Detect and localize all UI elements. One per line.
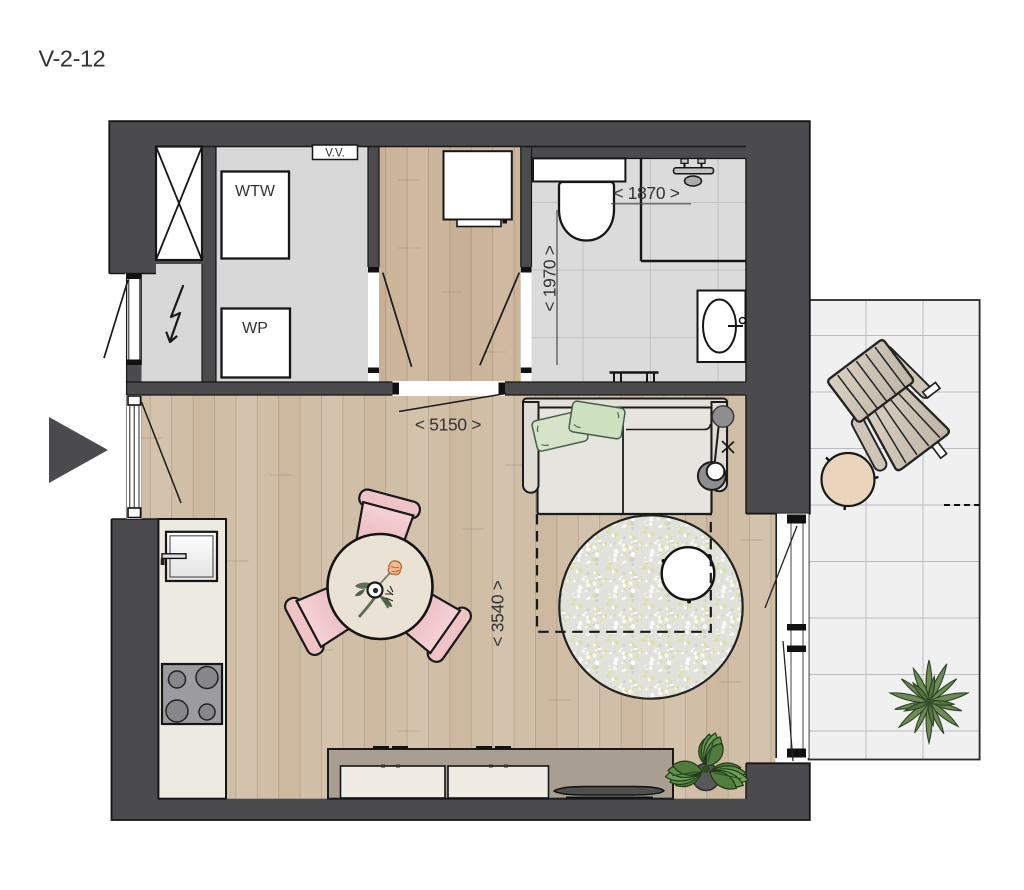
svg-text:< 3540 >: < 3540 > (488, 580, 508, 646)
svg-text:< 1970 >: < 1970 > (540, 245, 560, 311)
svg-text:V-2-12: V-2-12 (39, 46, 106, 72)
svg-text:V.V.: V.V. (325, 148, 345, 160)
svg-text:< 5150 >: < 5150 > (415, 415, 481, 435)
svg-text:WP: WP (242, 320, 268, 337)
svg-text:WTW: WTW (235, 183, 276, 200)
svg-text:< 1870 >: < 1870 > (613, 183, 679, 203)
